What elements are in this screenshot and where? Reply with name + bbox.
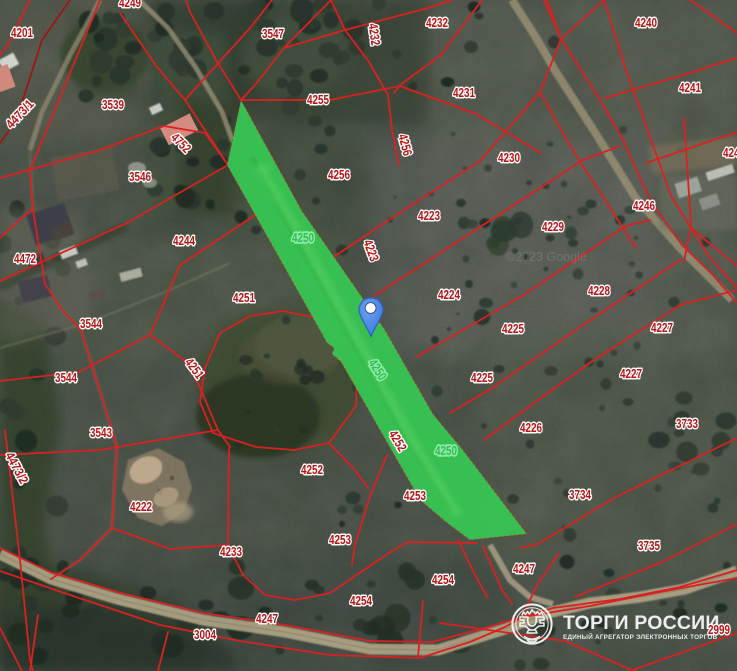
svg-text:4247: 4247: [256, 611, 278, 626]
svg-text:4227: 4227: [651, 320, 673, 335]
svg-text:4233: 4233: [220, 544, 242, 559]
svg-text:2999: 2999: [708, 622, 730, 637]
svg-text:4230: 4230: [498, 150, 520, 165]
svg-text:4231: 4231: [453, 85, 475, 100]
svg-text:ЕДИНЫЙ АГРЕГАТОР ЭЛЕКТРОННЫХ Т: ЕДИНЫЙ АГРЕГАТОР ЭЛЕКТРОННЫХ ТОРГОВ: [563, 632, 718, 641]
svg-text:4256: 4256: [328, 167, 350, 182]
svg-text:4223: 4223: [418, 208, 440, 223]
svg-text:4241: 4241: [679, 80, 701, 95]
svg-text:ТОРГИ РОССИИ: ТОРГИ РОССИИ: [563, 612, 720, 634]
svg-text:4250: 4250: [435, 443, 457, 458]
svg-text:4226: 4226: [520, 420, 542, 435]
svg-text:4472: 4472: [14, 251, 36, 266]
svg-text:4249: 4249: [723, 145, 737, 160]
svg-text:4249: 4249: [119, 0, 141, 10]
svg-text:4228: 4228: [588, 283, 610, 298]
svg-text:4229: 4229: [542, 219, 564, 234]
svg-text:4232: 4232: [365, 22, 383, 46]
svg-text:4232: 4232: [426, 15, 448, 30]
svg-text:3539: 3539: [102, 97, 124, 112]
svg-text:©2023 Google: ©2023 Google: [506, 250, 587, 264]
svg-text:4250: 4250: [292, 230, 314, 245]
svg-text:3543: 3543: [90, 425, 112, 440]
svg-text:4224: 4224: [438, 287, 461, 302]
svg-text:4254: 4254: [432, 572, 455, 587]
svg-text:3733: 3733: [676, 416, 698, 431]
svg-text:4255: 4255: [307, 92, 329, 107]
svg-text:4253: 4253: [404, 488, 426, 503]
svg-text:4251: 4251: [233, 290, 255, 305]
svg-text:3544: 3544: [80, 316, 103, 331]
svg-text:4225: 4225: [502, 321, 524, 336]
svg-text:3544: 3544: [55, 370, 78, 385]
svg-text:4240: 4240: [635, 15, 657, 30]
svg-text:3546: 3546: [129, 169, 151, 184]
svg-text:4222: 4222: [130, 499, 152, 514]
svg-text:4254: 4254: [350, 593, 373, 608]
svg-text:3004: 3004: [194, 627, 217, 642]
svg-text:3734: 3734: [569, 487, 592, 502]
svg-text:4253: 4253: [329, 532, 351, 547]
svg-text:4225: 4225: [471, 370, 493, 385]
svg-text:4247: 4247: [513, 561, 535, 576]
svg-text:4246: 4246: [633, 198, 655, 213]
svg-text:3547: 3547: [262, 26, 284, 41]
svg-text:4201: 4201: [11, 25, 33, 40]
svg-text:4227: 4227: [620, 366, 642, 381]
svg-text:4252: 4252: [301, 462, 323, 477]
svg-text:3735: 3735: [638, 538, 660, 553]
svg-text:4244: 4244: [173, 233, 196, 248]
